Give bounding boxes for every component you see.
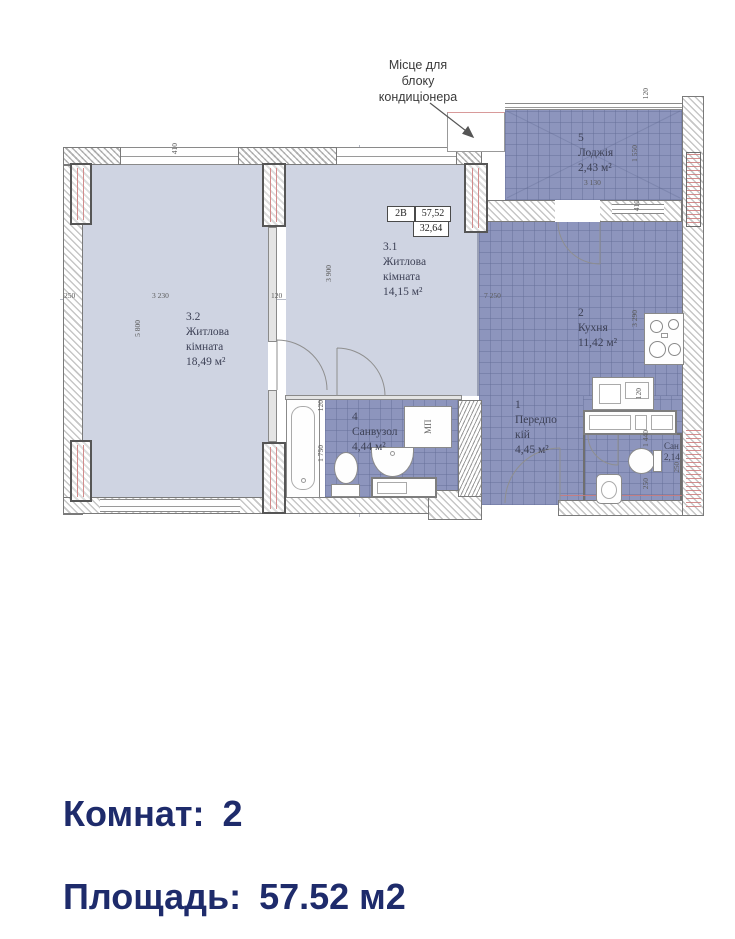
dim-1550: 1 550 — [630, 145, 639, 162]
summary-area-line: Площадь:57.52 м2 — [63, 876, 406, 918]
kitchen-counter — [583, 410, 677, 435]
rooms-label: Комнат: — [63, 793, 205, 834]
dim-3900: 3 900 — [324, 265, 333, 282]
window-loggia-glazing — [505, 103, 682, 110]
summary-rooms-line: Комнат:2 — [63, 793, 243, 835]
apartment-total-area: 57,52 — [415, 206, 451, 222]
label-bathroom: 4 Санвузол 4,44 м² — [352, 410, 398, 455]
room-3-1-name2: кімната — [383, 270, 426, 285]
insulation-mark-bottom-right — [560, 495, 688, 499]
hallway-number: 1 — [515, 398, 557, 413]
floor-plan: МП — [0, 0, 735, 560]
column-left-bottom — [70, 440, 92, 502]
room-living-3-1-fill — [286, 165, 478, 396]
washing-machine-place: МП — [404, 406, 452, 448]
ac-note-line1: Місце для — [363, 57, 473, 73]
stove — [644, 313, 684, 365]
small-bath-toilet-bowl — [628, 448, 655, 474]
apartment-living-area: 32,64 — [413, 221, 449, 237]
bathtub — [286, 399, 320, 498]
ac-unit-box — [447, 112, 505, 152]
dim-120-bath: 120 — [316, 400, 325, 411]
dim-250-small-bath: 250 — [673, 462, 682, 473]
bathtub-drain — [301, 478, 306, 483]
column-left-top — [70, 163, 92, 225]
bathroom-number: 4 — [352, 410, 398, 425]
floor-plan-page: МП — [0, 0, 735, 939]
room-3-1-number: 3.1 — [383, 240, 426, 255]
dim-3290: 3 290 — [630, 310, 639, 327]
dim-410-top-left: 410 — [170, 143, 179, 154]
label-hallway: 1 Передпо кій 4,45 м² — [515, 398, 557, 458]
room-3-1-name1: Житлова — [383, 255, 426, 270]
ac-note: Місце для блоку кондиціонера — [363, 57, 473, 105]
balcony-door-opening — [555, 200, 600, 222]
dim-250-left: 250 — [64, 291, 75, 300]
dim-1750: 1 750 — [316, 445, 325, 462]
room-3-1-area: 14,15 м² — [383, 285, 426, 300]
window-top-room-3-2 — [121, 147, 238, 165]
loggia-name: Лоджія — [578, 146, 613, 161]
info-table-spacer — [387, 221, 413, 235]
bathroom-counter — [371, 477, 437, 498]
area-label: Площадь: — [63, 876, 241, 917]
toilet-bowl — [334, 452, 358, 484]
hallway-name2: кій — [515, 428, 557, 443]
area-value: 57.52 м2 — [259, 876, 406, 917]
room-3-2-area: 18,49 м² — [186, 355, 229, 370]
ac-note-line3: кондиціонера — [363, 89, 473, 105]
small-bath-toilet-tank — [653, 450, 662, 472]
hallway-name1: Передпо — [515, 413, 557, 428]
bathroom-name: Санвузол — [352, 425, 398, 440]
bathroom-area: 4,44 м² — [352, 440, 398, 455]
dim-120-kitchen: 120 — [634, 388, 643, 399]
room-3-2-number: 3.2 — [186, 310, 229, 325]
partition-32-31-upper — [268, 227, 277, 342]
partition-32-31-lower — [268, 390, 277, 442]
label-room-3-2: 3.2 Житлова кімната 18,49 м² — [186, 310, 229, 370]
dim-7250: 7 250 — [484, 291, 501, 300]
label-small-bath: Сан 2,14 — [664, 441, 680, 463]
partition-31-kitchen — [477, 233, 479, 396]
dim-250-right: 250 — [641, 478, 650, 489]
window-bottom-room-3-2 — [100, 499, 240, 512]
column-31-right — [464, 163, 488, 233]
small-bath-sink — [596, 474, 622, 504]
dim-5800: 5 800 — [133, 320, 142, 337]
small-bath-name: Сан — [664, 441, 680, 452]
wall-top-cap-mid — [238, 147, 337, 165]
apartment-info-table: 2В 57,52 32,64 — [387, 206, 451, 237]
kitchen-sink — [592, 377, 654, 410]
kitchen-number: 2 — [578, 306, 617, 321]
room-living-3-2-fill — [83, 165, 268, 497]
column-partition-bottom — [262, 442, 286, 514]
wall-bottom-right — [558, 500, 690, 516]
label-room-3-1: 3.1 Житлова кімната 14,15 м² — [383, 240, 426, 300]
insulation-mark-right-upper — [686, 152, 701, 227]
label-loggia: 5 Лоджія 2,43 м² 3 130 — [578, 131, 613, 187]
rooms-value: 2 — [223, 793, 243, 834]
dim-3230: 3 230 — [152, 291, 169, 300]
room-3-2-name2: кімната — [186, 340, 229, 355]
dim-410-balcony: 410 — [632, 200, 641, 211]
dim-1440: 1 440 — [641, 430, 650, 447]
window-top-room-3-1 — [337, 147, 456, 165]
kitchen-name: Кухня — [578, 321, 617, 336]
insulation-mark-right-lower — [686, 430, 701, 510]
loggia-area: 2,43 м² — [578, 161, 613, 176]
dim-120-top-right: 120 — [641, 88, 650, 99]
dim-3130: 3 130 — [584, 178, 613, 187]
room-3-2-name1: Житлова — [186, 325, 229, 340]
label-kitchen: 2 Кухня 11,42 м² — [578, 306, 617, 351]
vent-shaft — [458, 400, 482, 497]
toilet-tank — [331, 484, 360, 497]
dim-120-mid: 120 — [271, 291, 282, 300]
ac-note-line2: блоку — [363, 73, 473, 89]
kitchen-area: 11,42 м² — [578, 336, 617, 351]
apartment-type: 2В — [387, 206, 415, 222]
hallway-area: 4,45 м² — [515, 443, 557, 458]
washing-machine-label: МП — [405, 407, 451, 447]
loggia-number: 5 — [578, 131, 613, 146]
column-partition-top — [262, 163, 286, 227]
